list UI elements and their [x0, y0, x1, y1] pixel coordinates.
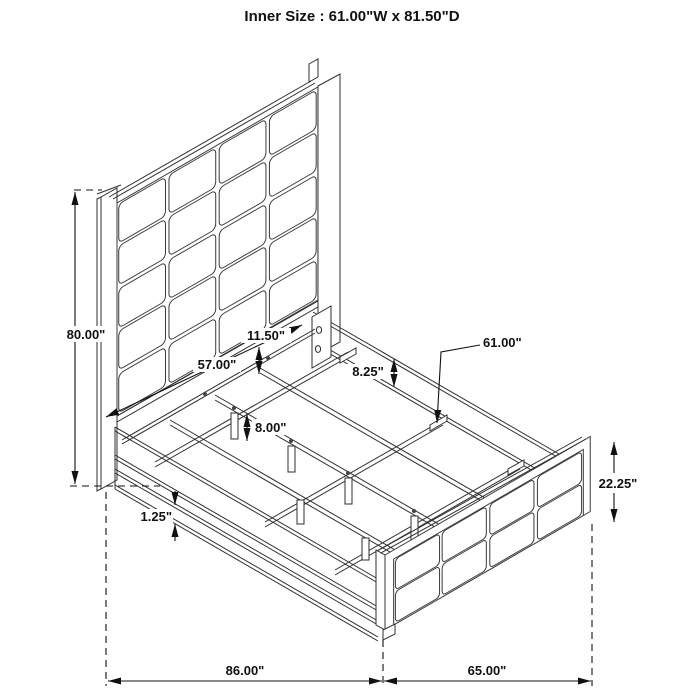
footboard	[376, 437, 590, 641]
dim-label: 22.25"	[599, 476, 638, 491]
dim-label: 8.00"	[255, 420, 286, 435]
dim-label: 61.00"	[483, 335, 522, 350]
dim-footboard-height-22-25: 22.25"	[599, 442, 638, 522]
isometric-bed-drawing: 80.00" 57.00" 11.50" 8.25" 61.00" 8.00" …	[0, 0, 700, 700]
dim-label: 65.00"	[468, 663, 507, 678]
dim-label: 86.00"	[226, 663, 265, 678]
mounting-bracket	[312, 306, 331, 368]
dim-label: 8.25"	[352, 364, 383, 379]
footboard-side	[376, 550, 385, 630]
dim-slat-inner-width-61: 61.00"	[437, 335, 522, 423]
dim-label: 80.00"	[67, 327, 106, 342]
right-post-cap	[309, 59, 318, 82]
bed-dimension-diagram: 80.00" 57.00" 11.50" 8.25" 61.00" 8.00" …	[0, 0, 700, 700]
dim-label: 57.00"	[198, 357, 237, 372]
dim-label: 11.50"	[247, 328, 285, 343]
dim-label: 1.25"	[141, 509, 172, 524]
page-title: Inner Size : 61.00"W x 81.50"D	[244, 8, 459, 25]
left-post-side	[97, 197, 101, 491]
side-rail-left-front	[115, 427, 378, 641]
